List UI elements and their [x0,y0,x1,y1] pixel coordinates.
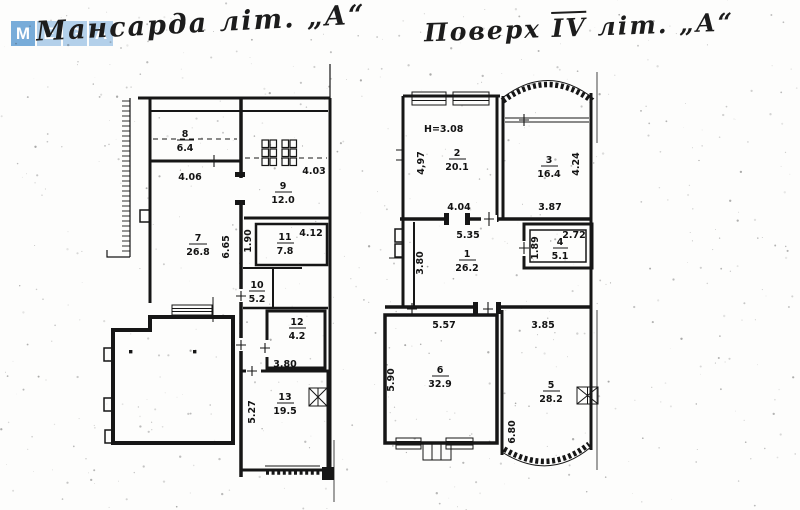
dim-label: 1.89 [530,236,541,259]
dim-label: 4.03 [302,166,325,177]
dim-label: 5.90 [386,368,397,392]
bay-window-arc-top [501,81,594,102]
room-number: 10 [250,280,264,291]
room-label-10: 10 5.2 [249,280,266,305]
room-area: 5.2 [249,294,266,305]
ceiling-height-note: H=3.08 [424,124,464,135]
window-band-room13 [265,466,334,480]
dim-label: 4.12 [299,228,322,239]
room-area: 32.9 [428,379,451,390]
room-number: 2 [454,148,461,159]
scan-noise-speckles [0,0,797,510]
room-area: 20.1 [445,162,468,173]
room-number: 13 [278,392,291,403]
room-area: 28.2 [539,394,562,405]
room-label-8: 8 6.4 [177,129,194,154]
room-label-6: 6 32.9 [428,365,451,390]
dim-label: 5.27 [247,400,258,423]
window-line-room3 [505,118,589,122]
dim-label: 4,97 [416,151,427,174]
left-plan-walls [104,64,334,502]
room-area: 5.1 [552,251,569,262]
hatched-wall-edge [122,101,130,251]
room-area: 7.8 [277,246,294,257]
scanned-floor-plan-page: M E G A Мансарда літ. „А“ Поверх IV літ.… [0,0,800,510]
dim-label: 3.85 [531,320,554,331]
room-area: 4.2 [289,331,306,342]
room-label-2: 2 20.1 [445,148,468,173]
room-number: 11 [278,232,291,243]
room-label-9: 9 12.0 [271,181,295,206]
room-number: 1 [464,249,471,260]
floor-plan-drawing: 8 6.4 4.06 9 12.0 4.03 7 26.8 6.65 1.90 … [0,0,800,510]
room-area: 26.8 [186,247,210,258]
room-area: 26.2 [455,263,478,274]
room-area: 6.4 [177,143,194,154]
title-word: Поверх [424,14,553,47]
dim-label: 4.06 [178,172,202,183]
right-plan-floor4: H=3.08 2 20.1 4,97 4.04 3 16.4 4.24 3.87… [385,72,598,470]
room-label-1: 1 26.2 [455,249,478,274]
room-number: 12 [290,317,303,328]
left-plan-mansarda: 8 6.4 4.06 9 12.0 4.03 7 26.8 6.65 1.90 … [104,64,334,502]
room-number: 3 [546,155,553,166]
room-number: 7 [195,233,202,244]
dim-label: 1.90 [243,229,254,253]
room-area: 19.5 [273,406,296,417]
room-label-11: 11 7.8 [277,232,294,257]
room-label-12: 12 4.2 [289,317,306,342]
room-number: 6 [437,365,444,376]
room-label-5: 5 28.2 [539,380,562,405]
room-label-3: 3 16.4 [537,155,561,180]
room-number: 8 [182,129,189,140]
column-dots [129,350,196,353]
dim-label: 6.80 [507,420,518,444]
dim-label: 3.80 [415,251,426,275]
dim-label: 2.72 [562,230,585,241]
dim-label: 3.87 [538,202,561,213]
dim-label: 6.65 [221,235,232,258]
x-box-symbol-room5 [577,387,598,404]
dim-label: 4.24 [571,152,582,176]
title-word: літ. „А“ [586,8,734,42]
dim-label: 3,80 [273,359,297,370]
room-label-7: 7 26.8 [186,233,210,258]
room-number: 5 [548,380,555,391]
dim-label: 4.04 [447,202,471,213]
window-symbol-room2 [412,92,489,105]
room-area: 12.0 [271,195,295,206]
room-number: 9 [280,181,287,192]
room-label-13: 13 19.5 [273,392,296,417]
room-area: 16.4 [537,169,561,180]
dim-label: 5.35 [456,230,479,241]
dim-label: 5.57 [432,320,455,331]
stair-shaft-grid-icon [262,140,297,166]
bay-window-arc-bottom [502,444,591,466]
title-floor-numeral: IV [551,13,587,43]
x-box-symbol-room13 [309,388,327,406]
